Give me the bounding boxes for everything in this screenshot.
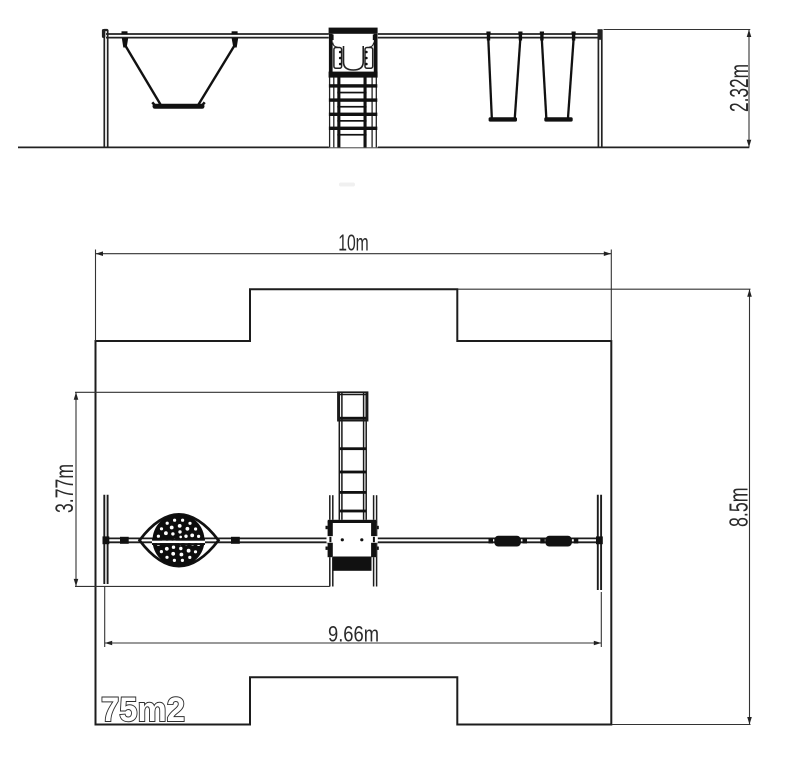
svg-text:9.66m: 9.66m	[328, 622, 379, 647]
svg-text:75m2: 75m2	[101, 691, 185, 729]
svg-text:2.32m: 2.32m	[724, 64, 754, 112]
svg-text:8.5m: 8.5m	[726, 488, 754, 528]
svg-text:10m: 10m	[338, 230, 369, 256]
svg-text:3.77m: 3.77m	[51, 464, 79, 513]
